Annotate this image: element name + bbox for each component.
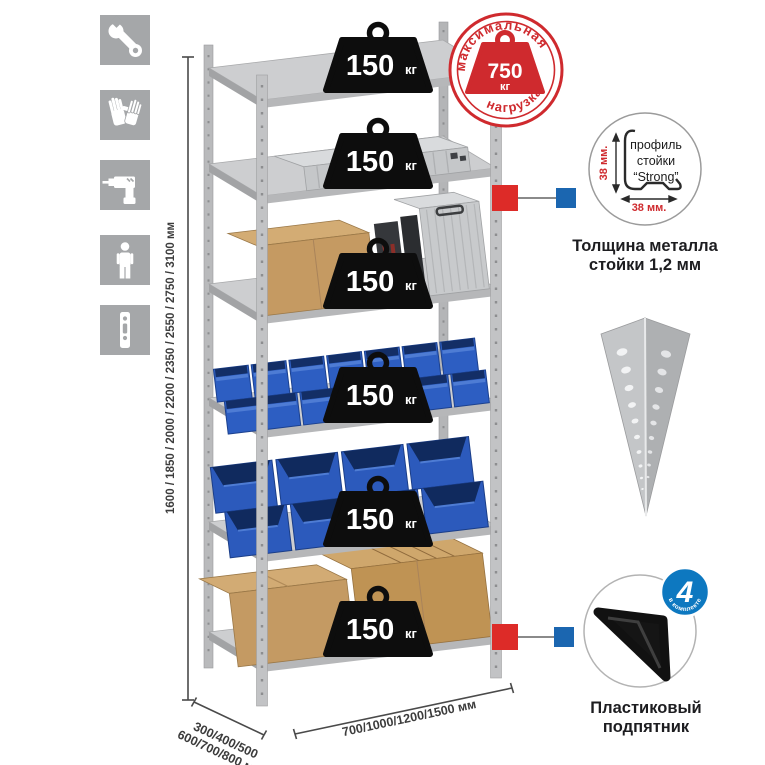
marker-red-square (492, 185, 518, 211)
marker-blue-square (554, 627, 574, 647)
height-dimension (182, 57, 194, 700)
weight-badge: 150 кг (326, 25, 430, 91)
height-dimension-label: 1600 / 1850 / 2000 / 2200 / 2350 / 2550 … (165, 222, 177, 514)
post-profile-callout: 38 мм. 38 мм. профиль стойки “Strong” (583, 107, 707, 231)
svg-text:150: 150 (346, 50, 394, 82)
svg-text:150: 150 (346, 614, 394, 646)
profile-dim-vertical: 38 мм. (598, 146, 610, 181)
svg-text:стойки: стойки (637, 154, 675, 168)
svg-text:“Strong”: “Strong” (633, 170, 678, 184)
foot-caption: Пластиковый подпятник (572, 699, 720, 737)
svg-text:кг: кг (405, 62, 418, 77)
svg-text:150: 150 (346, 380, 394, 412)
svg-text:кг: кг (405, 158, 418, 173)
svg-text:кг: кг (405, 278, 418, 293)
included-count-badge: 4 в комплекте (661, 568, 709, 616)
width-dimension-label: 700/1000/1200/1500 мм (341, 697, 478, 739)
max-load-stamp: максимальная нагрузка 750 кг (444, 6, 569, 131)
profile-dim-horizontal: 38 мм. (632, 202, 667, 214)
profile-label: профиль стойки “Strong” (630, 138, 682, 184)
marker-red-square (492, 624, 518, 650)
svg-text:кг: кг (405, 626, 418, 641)
plastic-foot-callout: 4 в комплекте (576, 566, 716, 706)
svg-text:профиль: профиль (630, 138, 682, 152)
svg-text:кг: кг (405, 516, 418, 531)
svg-text:150: 150 (346, 266, 394, 298)
weight-badge: 150 кг (326, 121, 430, 187)
depth-dimension-label: 300/400/500 600/700/800 мм (175, 715, 270, 765)
profile-caption: Толщина металла стойки 1,2 мм (562, 237, 728, 275)
width-dimension (294, 683, 514, 739)
marker-blue-square (556, 188, 576, 208)
svg-text:150: 150 (346, 504, 394, 536)
svg-text:750: 750 (487, 60, 522, 83)
product-infographic: 150 кг 150 кг 150 кг 150 кг 150 кг (0, 0, 765, 765)
corner-post-image (593, 308, 698, 528)
svg-text:150: 150 (346, 146, 394, 178)
svg-text:кг: кг (500, 81, 511, 93)
svg-text:кг: кг (405, 392, 418, 407)
